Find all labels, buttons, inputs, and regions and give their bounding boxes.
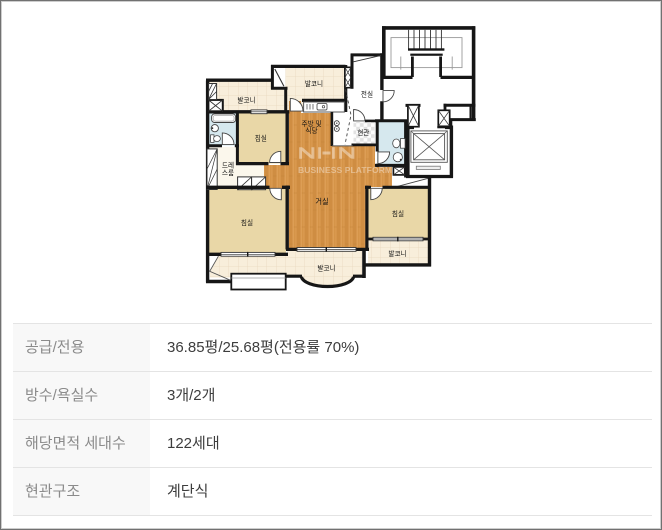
svg-text:발코니: 발코니: [317, 264, 335, 273]
svg-text:발코니: 발코니: [305, 79, 323, 88]
svg-text:전실: 전실: [361, 90, 373, 99]
svg-text:침실: 침실: [255, 133, 267, 142]
svg-text:현관: 현관: [357, 128, 369, 137]
svg-text:식당: 식당: [305, 126, 317, 135]
svg-text:드레: 드레: [222, 161, 234, 170]
svg-text:스룸: 스룸: [222, 169, 234, 177]
svg-text:침실: 침실: [392, 209, 404, 218]
svg-text:거실: 거실: [315, 197, 328, 206]
svg-text:발코니: 발코니: [388, 249, 406, 258]
svg-text:침실: 침실: [241, 218, 253, 227]
svg-text:주방 및: 주방 및: [301, 119, 321, 128]
svg-text:발코니: 발코니: [237, 96, 255, 105]
